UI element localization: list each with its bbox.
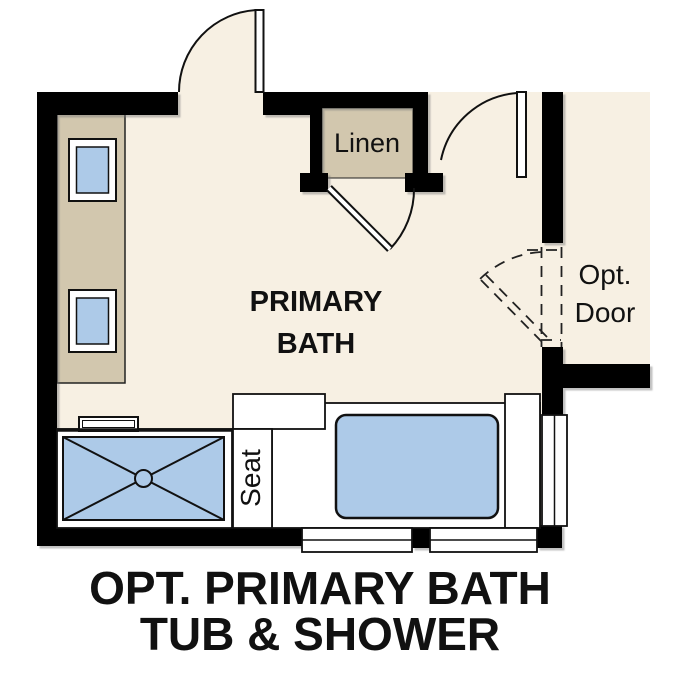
tub-deck-ledge-left [233, 394, 325, 429]
seat-label: Seat [235, 449, 266, 507]
tub-deck-ledge-right [505, 394, 540, 528]
wall-segment [37, 527, 302, 546]
wall-segment [542, 92, 563, 243]
entry-door-leaf [256, 10, 264, 92]
wall-segment [37, 92, 178, 115]
opt-door-label-line1: Opt. [579, 259, 632, 290]
sink-basin-bottom [77, 298, 109, 344]
side-door-leaf [517, 92, 526, 177]
caption-line1: OPT. PRIMARY BATH [89, 562, 551, 614]
wall-segment [542, 364, 650, 388]
wall-segment [412, 527, 430, 548]
caption: OPT. PRIMARY BATH TUB & SHOWER [89, 562, 551, 660]
floor-plan: Linen PRIMARY BATH Opt. Door Seat OPT. P… [0, 0, 687, 687]
shower-drain [135, 470, 152, 487]
wall-segment [310, 92, 322, 177]
wall-segment [413, 92, 428, 177]
room-label-line2: BATH [277, 328, 355, 360]
entry-door-swing-area [179, 10, 261, 92]
sink-basin-top [77, 147, 109, 193]
bathtub [336, 415, 498, 518]
room-label-line1: PRIMARY [250, 286, 383, 318]
linen-label: Linen [334, 128, 400, 158]
wall-segment [405, 173, 443, 192]
wall-segment [37, 92, 57, 546]
opt-door-label-line2: Door [575, 297, 636, 328]
entry-threshold [178, 92, 263, 117]
wall-segment [300, 173, 328, 192]
wall-segment [322, 92, 413, 108]
opt-door-threshold [541, 243, 563, 347]
caption-line2: TUB & SHOWER [140, 608, 500, 660]
